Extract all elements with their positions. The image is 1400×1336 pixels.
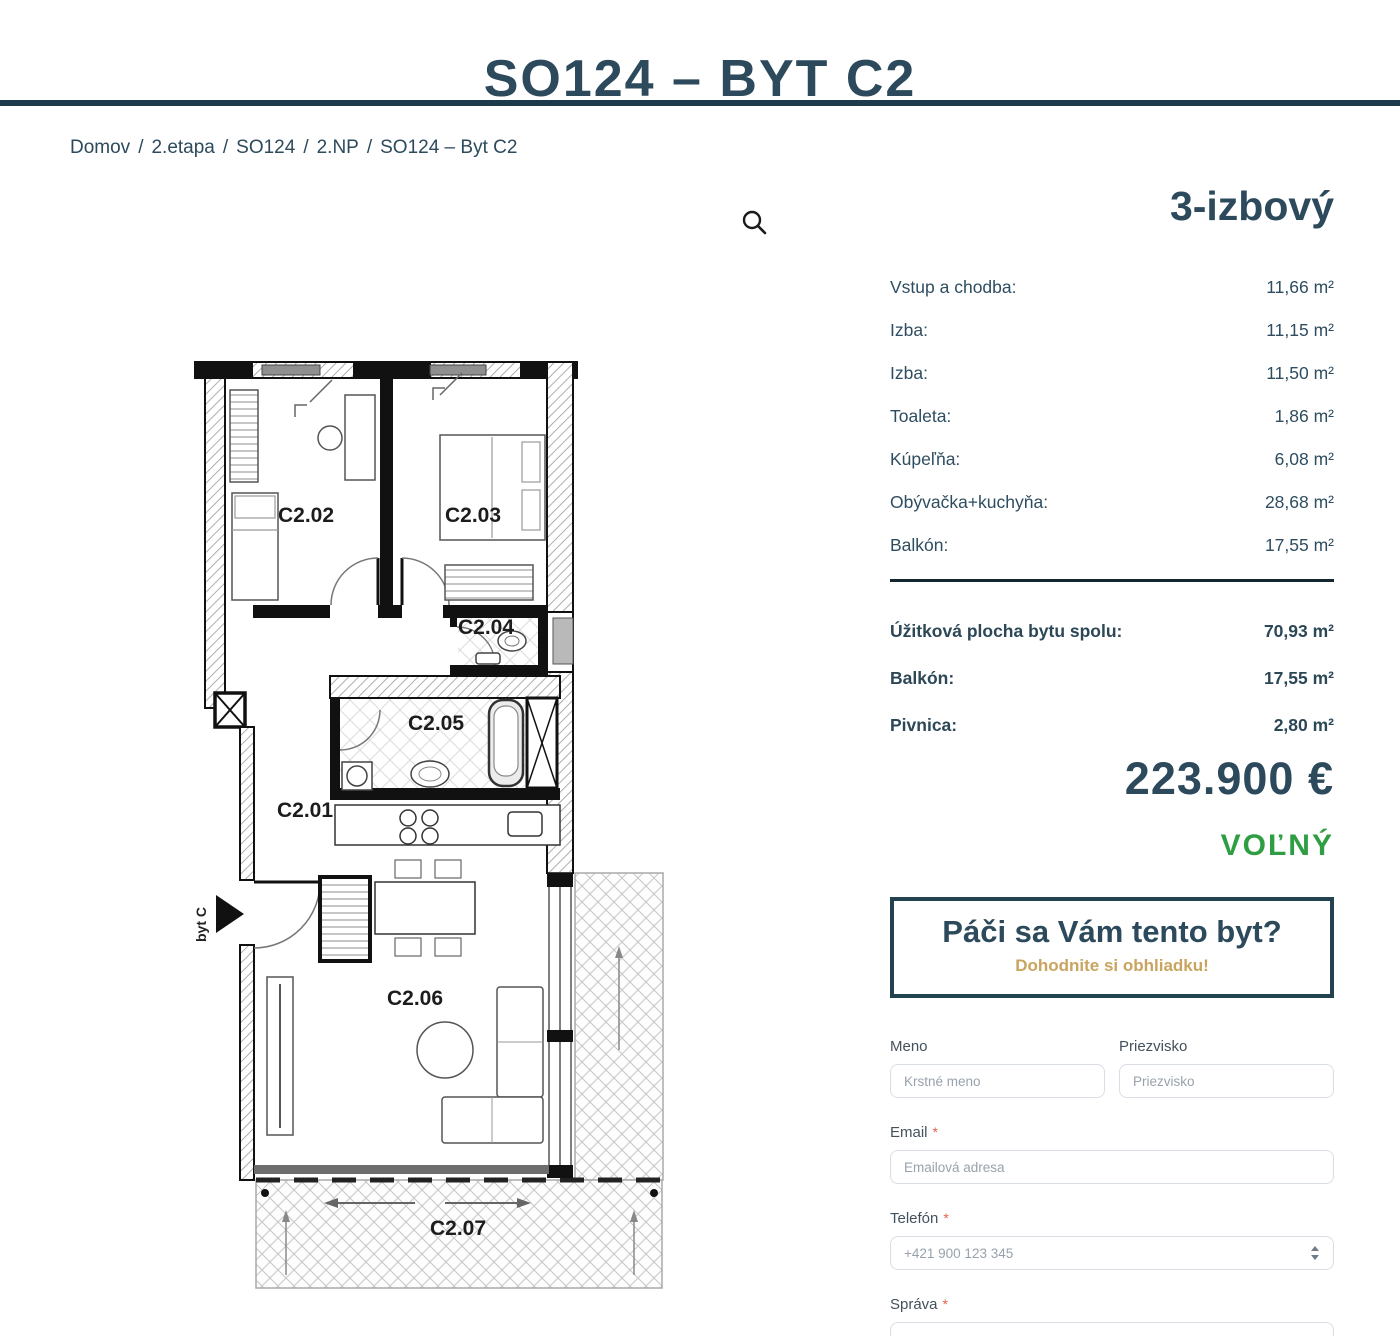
breadcrumb-separator: / (367, 137, 372, 158)
meno-input[interactable] (890, 1064, 1105, 1098)
cta-heading: Páči sa Vám tento byt? (904, 913, 1320, 950)
total-row-label: Balkón: (890, 668, 954, 689)
breadcrumb-separator: / (138, 137, 143, 158)
header-divider (0, 100, 1400, 106)
image-zoom-button[interactable] (738, 207, 772, 241)
email-input[interactable] (890, 1150, 1334, 1184)
breadcrumb-item-so124[interactable]: SO124 (236, 137, 295, 158)
room-label-c202: C2.02 (278, 504, 334, 527)
area-row: Kúpeľňa:6,08 m² (890, 438, 1334, 481)
stepper-up-icon[interactable] (1311, 1246, 1319, 1251)
sprava-textarea[interactable] (890, 1322, 1334, 1336)
area-row-label: Obývačka+kuchyňa: (890, 492, 1048, 513)
area-row-value: 28,68 m² (1265, 492, 1334, 513)
area-row: Obývačka+kuchyňa:28,68 m² (890, 481, 1334, 524)
total-row: Úžitková plocha bytu spolu:70,93 m² (890, 608, 1334, 655)
field-meno: Meno (890, 1038, 1105, 1098)
field-email: Email* (890, 1124, 1334, 1184)
totals-list: Úžitková plocha bytu spolu:70,93 m² Balk… (890, 608, 1334, 749)
room-label-c204: C2.04 (458, 616, 514, 639)
field-sprava: Správa* (890, 1296, 1334, 1336)
status-badge: VOĽNÝ (890, 829, 1334, 863)
contact-form: Meno Priezvisko Email* Telefón* (890, 1038, 1334, 1336)
breadcrumb-item-etapa[interactable]: 2.etapa (151, 137, 214, 158)
telefon-label: Telefón (890, 1210, 938, 1227)
room-label-c205: C2.05 (408, 712, 464, 735)
breadcrumb-separator: / (223, 137, 228, 158)
area-row-label: Toaleta: (890, 406, 951, 427)
required-asterisk: * (943, 1210, 948, 1226)
apartment-type: 3-izbový (890, 183, 1334, 230)
phone-stepper[interactable] (1307, 1243, 1323, 1263)
room-label-c201: C2.01 (277, 799, 333, 822)
field-priezvisko: Priezvisko (1119, 1038, 1334, 1098)
floor-plan[interactable]: byt C C2.02 C2.03 C2.04 C2.05 C2.01 C2.0… (190, 350, 670, 1290)
area-row: Toaleta:1,86 m² (890, 395, 1334, 438)
area-row-value: 11,50 m² (1266, 363, 1334, 384)
area-row-value: 11,15 m² (1266, 320, 1334, 341)
breadcrumb-current: SO124 – Byt C2 (380, 137, 517, 158)
area-row-value: 11,66 m² (1266, 277, 1334, 298)
area-row-value: 17,55 m² (1265, 535, 1334, 556)
priezvisko-input[interactable] (1119, 1064, 1334, 1098)
area-row-label: Balkón: (890, 535, 948, 556)
breadcrumb-separator: / (303, 137, 308, 158)
total-row-value: 17,55 m² (1264, 668, 1334, 689)
breadcrumb-item-np[interactable]: 2.NP (317, 137, 359, 158)
required-asterisk: * (943, 1296, 948, 1312)
total-row-value: 70,93 m² (1264, 621, 1334, 642)
telefon-input[interactable] (890, 1236, 1334, 1270)
required-asterisk: * (933, 1124, 938, 1140)
area-row-value: 6,08 m² (1275, 449, 1334, 470)
email-label: Email (890, 1124, 928, 1141)
entrance-label: byt C (193, 907, 209, 942)
room-label-c203: C2.03 (445, 504, 501, 527)
breadcrumb: Domov/2.etapa/SO124/2.NP/SO124 – Byt C2 (70, 137, 517, 159)
area-row: Izba:11,15 m² (890, 309, 1334, 352)
total-row: Balkón:17,55 m² (890, 655, 1334, 702)
priezvisko-label: Priezvisko (1119, 1038, 1334, 1055)
area-row: Balkón:17,55 m² (890, 524, 1334, 567)
cta-subheading[interactable]: Dohodnite si obhliadku! (904, 956, 1320, 976)
area-list: Vstup a chodba:11,66 m² Izba:11,15 m² Iz… (890, 266, 1334, 567)
room-label-c206: C2.06 (387, 987, 443, 1010)
total-row-value: 2,80 m² (1274, 715, 1334, 736)
magnifier-icon (738, 207, 772, 241)
field-telefon: Telefón* (890, 1210, 1334, 1270)
totals-divider (890, 579, 1334, 582)
cta-box: Páči sa Vám tento byt? Dohodnite si obhl… (890, 897, 1334, 998)
area-row: Izba:11,50 m² (890, 352, 1334, 395)
area-row-label: Izba: (890, 363, 928, 384)
meno-label: Meno (890, 1038, 1105, 1055)
area-row-label: Izba: (890, 320, 928, 341)
room-label-c207: C2.07 (430, 1217, 486, 1240)
apartment-details: 3-izbový Vstup a chodba:11,66 m² Izba:11… (890, 183, 1334, 1336)
sprava-label: Správa (890, 1296, 938, 1313)
page: SO124 – BYT C2 Domov/2.etapa/SO124/2.NP/… (0, 0, 1400, 1336)
area-row-value: 1,86 m² (1275, 406, 1334, 427)
stepper-down-icon[interactable] (1311, 1255, 1319, 1260)
breadcrumb-item-domov[interactable]: Domov (70, 137, 130, 158)
entrance-arrow-icon (216, 895, 244, 933)
area-row-label: Vstup a chodba: (890, 277, 1016, 298)
area-row-label: Kúpeľňa: (890, 449, 960, 470)
total-row-label: Pivnica: (890, 715, 957, 736)
total-row-label: Úžitková plocha bytu spolu: (890, 621, 1122, 642)
price: 223.900 € (890, 753, 1334, 805)
total-row: Pivnica:2,80 m² (890, 702, 1334, 749)
area-row: Vstup a chodba:11,66 m² (890, 266, 1334, 309)
